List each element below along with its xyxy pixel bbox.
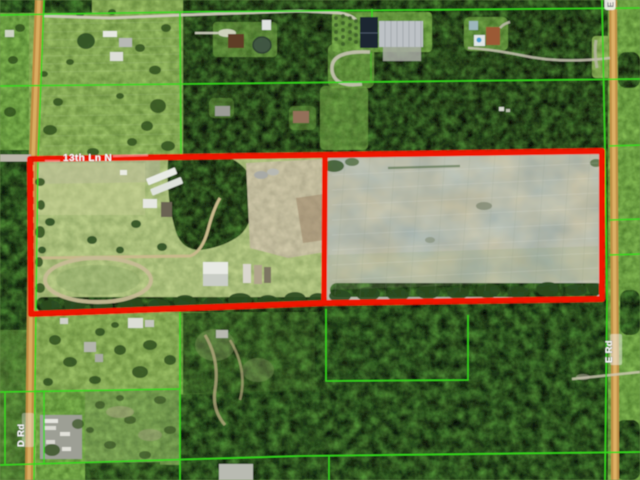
svg-text:D Rd: D Rd bbox=[16, 424, 27, 447]
svg-text:E: E bbox=[606, 2, 616, 8]
svg-text:E Rd: E Rd bbox=[604, 340, 615, 363]
svg-text:13th Ln N: 13th Ln N bbox=[63, 153, 112, 164]
